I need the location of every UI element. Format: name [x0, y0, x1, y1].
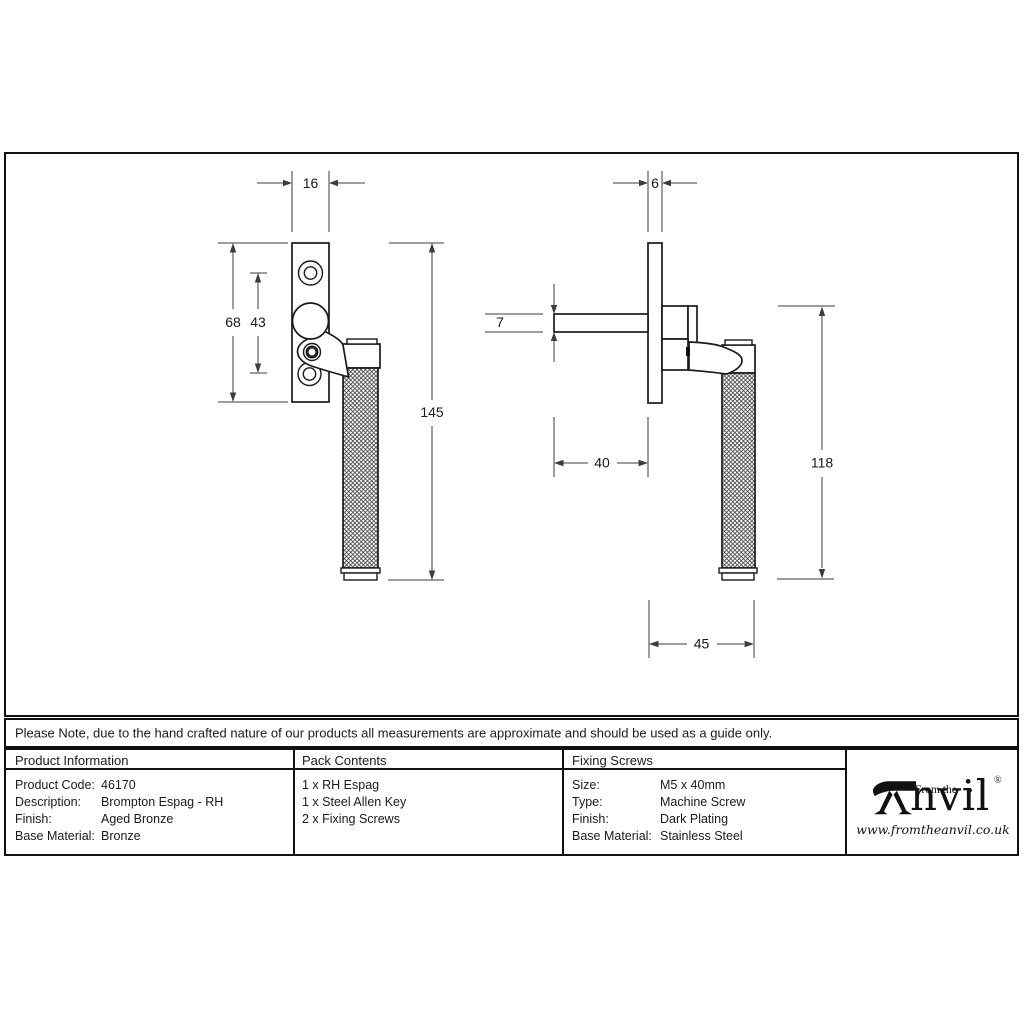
datasheet-page: 16 68 43 145: [0, 0, 1024, 1024]
table-divider-1: [293, 750, 295, 854]
table-row: Base Material: Stainless Steel: [572, 829, 837, 843]
table-header-rule: [6, 768, 845, 770]
row-label: Base Material:: [572, 829, 652, 843]
row-label: Finish:: [572, 812, 609, 826]
row-label: Finish:: [15, 812, 52, 826]
row-value: M5 x 40mm: [660, 778, 725, 792]
row-label: Product Code:: [15, 778, 95, 792]
row-value: Bronze: [101, 829, 141, 843]
pack-item: 2 x Fixing Screws: [302, 812, 552, 826]
brand-logo-cell: From the ♦ nvil ® www.fromtheanvil.co.uk: [847, 750, 1019, 854]
row-label: Base Material:: [15, 829, 95, 843]
table-row: Base Material: Bronze: [15, 829, 285, 843]
table-row: Description: Brompton Espag - RH: [15, 795, 285, 809]
pack-item: 1 x Steel Allen Key: [302, 795, 552, 809]
row-value: Dark Plating: [660, 812, 728, 826]
row-label: Description:: [15, 795, 81, 809]
row-value: Machine Screw: [660, 795, 745, 809]
row-label: Type:: [572, 795, 603, 809]
table-row: Type: Machine Screw: [572, 795, 837, 809]
logo-wordmark: nvil: [910, 775, 990, 817]
column-header-fixing-screws: Fixing Screws: [572, 753, 653, 768]
table-divider-2: [562, 750, 564, 854]
registered-mark: ®: [994, 775, 1002, 786]
table-row: Size: M5 x 40mm: [572, 778, 837, 792]
table-row: Product Code: 46170: [15, 778, 285, 792]
column-header-product-information: Product Information: [15, 753, 128, 768]
row-value: Aged Bronze: [101, 812, 173, 826]
pack-item: 1 x RH Espag: [302, 778, 552, 792]
row-value: 46170: [101, 778, 136, 792]
row-value: Stainless Steel: [660, 829, 743, 843]
row-label: Size:: [572, 778, 600, 792]
note-bar: Please Note, due to the hand crafted nat…: [4, 718, 1019, 748]
table-row: Finish: Dark Plating: [572, 812, 837, 826]
note-text: Please Note, due to the hand crafted nat…: [15, 726, 772, 741]
technical-drawing-panel: [4, 152, 1019, 717]
table-row: Finish: Aged Bronze: [15, 812, 285, 826]
row-value: Brompton Espag - RH: [101, 795, 223, 809]
logo-website: www.fromtheanvil.co.uk: [847, 822, 1019, 837]
spec-table: Product Information Product Code: 46170 …: [4, 748, 1019, 856]
column-header-pack-contents: Pack Contents: [302, 753, 387, 768]
